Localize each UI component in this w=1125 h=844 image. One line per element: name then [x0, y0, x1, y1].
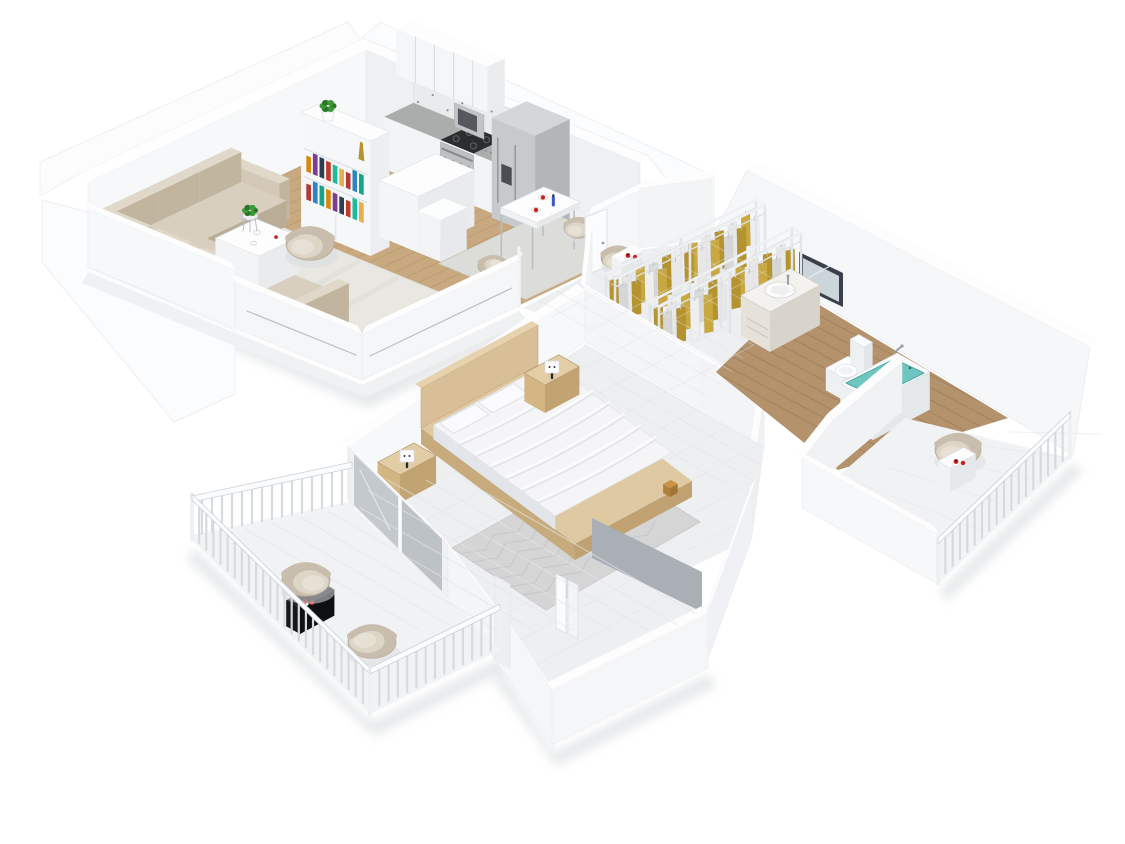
red-cup — [961, 461, 965, 465]
toilet-lid — [839, 367, 853, 375]
granite-speck — [490, 152, 492, 154]
book — [306, 156, 311, 174]
book — [313, 153, 318, 176]
door-knob — [602, 242, 605, 245]
book — [353, 170, 358, 193]
backsplash-speck — [446, 109, 448, 111]
floor-plan-stage: white-model architectural visualization … — [0, 0, 1125, 844]
book — [333, 164, 338, 184]
cup — [251, 241, 257, 245]
tub-jet — [909, 367, 912, 370]
garment — [731, 275, 741, 309]
chair-cushion — [568, 226, 582, 236]
cup-top — [955, 460, 957, 462]
backsplash-speck — [432, 94, 434, 96]
red-plate — [534, 208, 538, 212]
cube-lamp — [545, 361, 559, 373]
book — [313, 181, 318, 204]
backsplash-speck — [461, 102, 463, 104]
garment — [690, 298, 700, 341]
bottle-cap — [552, 194, 554, 197]
chair-cushion — [291, 239, 314, 254]
book — [320, 185, 325, 207]
plant-leaves — [249, 205, 255, 210]
book — [306, 184, 311, 202]
cube-lamp — [400, 450, 414, 462]
book — [339, 196, 344, 215]
floor-plan-render: white-model architectural visualization … — [0, 0, 1125, 844]
book — [346, 200, 351, 218]
plant-pot — [322, 112, 334, 121]
cup-top — [627, 254, 629, 256]
book — [359, 201, 364, 223]
faucet-head — [787, 275, 790, 278]
book — [320, 157, 325, 179]
tub-spout — [900, 344, 903, 347]
lamp-dot — [549, 366, 551, 368]
plant-leaves — [327, 100, 334, 106]
red-item — [274, 235, 278, 239]
book — [359, 173, 364, 195]
upper-cabinets-se — [487, 58, 504, 112]
book — [353, 198, 358, 221]
granite-speck — [485, 150, 487, 152]
backsplash-speck — [417, 101, 419, 103]
garment — [676, 307, 686, 343]
chair-cushion — [302, 575, 325, 590]
lamp-dot — [554, 366, 556, 368]
lamp-dot — [409, 455, 411, 457]
red-plate — [541, 195, 545, 199]
book — [346, 172, 351, 190]
book — [326, 189, 331, 210]
blue-bottle — [552, 196, 555, 206]
book — [339, 168, 344, 187]
book — [333, 192, 338, 212]
garment — [724, 235, 734, 270]
book — [326, 161, 331, 182]
lamp-dot — [404, 455, 406, 457]
